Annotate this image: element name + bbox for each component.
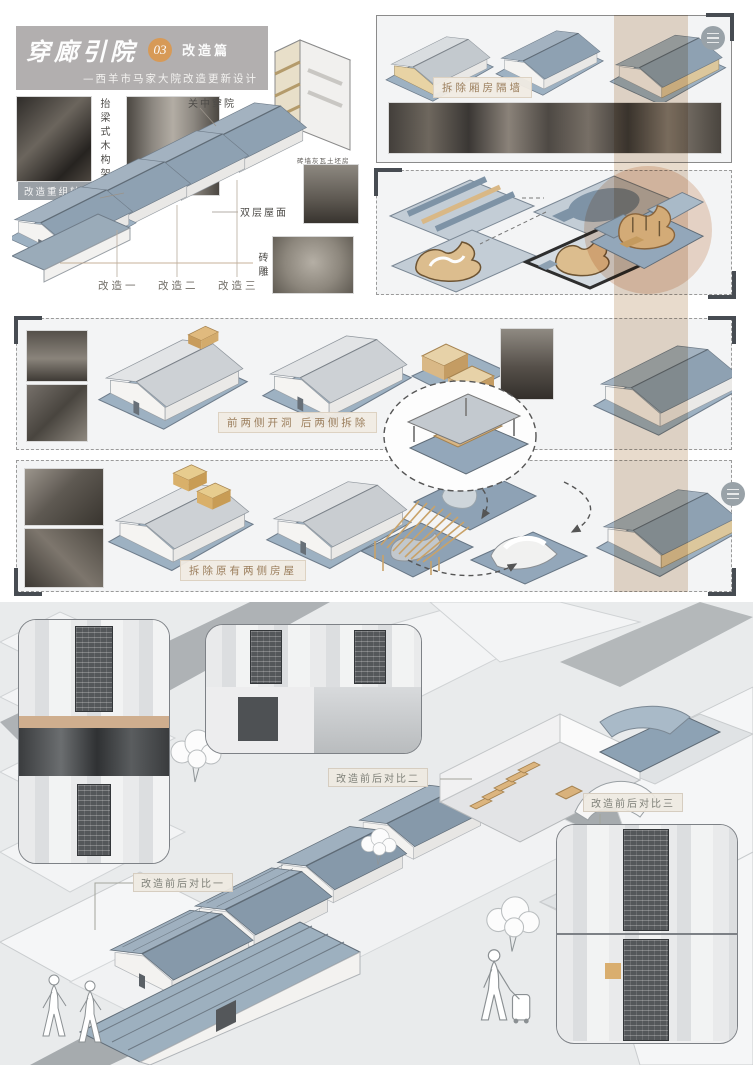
lattice-window <box>75 626 113 712</box>
interior-render <box>206 687 314 753</box>
compare-label-2: 改造前后对比二 <box>328 768 428 787</box>
tree <box>487 897 540 952</box>
facade-strip <box>19 776 169 863</box>
corner-bracket <box>708 271 736 299</box>
wood-band <box>19 716 169 728</box>
corner-bracket <box>708 568 736 596</box>
facade-strip <box>19 620 169 716</box>
courtyard-roof-chain <box>12 103 306 282</box>
corner-bracket <box>374 168 402 196</box>
facade-strip <box>557 825 737 935</box>
menu-circle-icon[interactable] <box>701 26 725 50</box>
step3-label: 前两侧开洞 后两侧拆除 <box>218 412 377 433</box>
facade-strip <box>557 935 737 1041</box>
step4-label: 拆除原有两侧房屋 <box>180 560 306 581</box>
pavilion-focus-circle <box>378 378 542 500</box>
presentation-board: 穿廊引院 03 改造篇 —西羊市马家大院改造更新设计 <box>0 0 753 1065</box>
inset-elevation-compare-1 <box>18 619 170 864</box>
overview-axonometric-drawing <box>12 30 372 305</box>
pedestrian-suitcase <box>481 950 529 1023</box>
wood-accent <box>605 963 621 979</box>
panel2-curved-model <box>585 167 711 293</box>
corner-bracket <box>708 316 736 344</box>
compare-label-3: 改造前后对比三 <box>583 793 683 812</box>
inset-elevation-compare-3 <box>556 824 738 1044</box>
lattice-window <box>77 784 111 856</box>
corner-bracket <box>14 316 42 344</box>
dark-doorway <box>238 697 278 741</box>
lattice-door <box>623 829 669 931</box>
corner-bracket <box>14 568 42 596</box>
aerial-render <box>314 687 422 753</box>
facade-strip <box>206 625 421 687</box>
step1-label: 拆除厢房隔墙 <box>433 77 532 98</box>
lattice-window <box>354 630 386 684</box>
lattice-door <box>623 939 669 1041</box>
menu-circle-icon[interactable] <box>721 482 745 506</box>
inset-elevation-compare-2 <box>205 624 422 754</box>
bw-interior-band <box>19 728 169 776</box>
site-axonometric-section: 改造前后对比一 改造前后对比二 改造前后对比三 <box>0 602 753 1065</box>
compare-label-1: 改造前后对比一 <box>133 873 233 892</box>
bw-photo-panorama-strip <box>388 102 722 154</box>
render-pair <box>206 687 421 753</box>
lattice-window <box>250 630 282 684</box>
pedestrians <box>43 975 101 1042</box>
panel4-models <box>16 460 732 592</box>
